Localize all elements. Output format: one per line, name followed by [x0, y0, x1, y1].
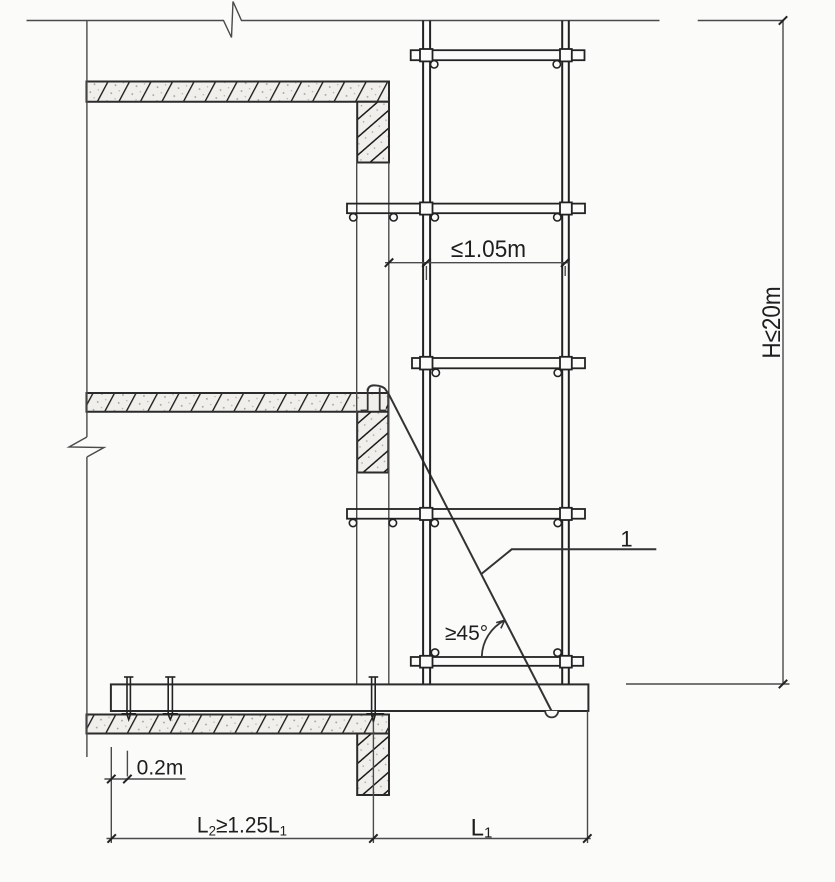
svg-text:≥45°: ≥45° — [445, 622, 488, 645]
svg-text:0.2m: 0.2m — [137, 756, 184, 779]
svg-text:1: 1 — [620, 527, 632, 552]
svg-text:L2≥1.25L1: L2≥1.25L1 — [197, 813, 287, 839]
svg-text:≤1.05m: ≤1.05m — [451, 235, 526, 262]
svg-text:H≤20m: H≤20m — [758, 286, 786, 358]
svg-text:L1: L1 — [471, 815, 493, 842]
